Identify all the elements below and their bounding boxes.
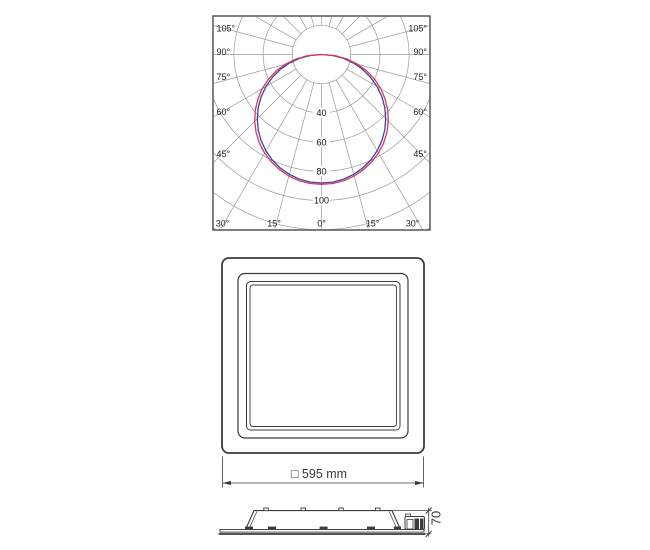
boss-icon — [394, 527, 401, 530]
boss-icon — [245, 527, 253, 530]
radial-tick-label: 80 — [316, 167, 326, 177]
angle-label-bottom: 30° — [216, 219, 230, 229]
angle-label-right: 75° — [413, 72, 427, 82]
boss-icon — [367, 527, 375, 530]
boss-icon — [268, 527, 276, 530]
angle-label-right: 105° — [408, 23, 427, 33]
arrowhead-right-icon — [415, 481, 424, 485]
angle-label-bottom: 0° — [317, 219, 326, 229]
angle-label-left: 105° — [217, 23, 236, 33]
polar-grid-ray — [236, 0, 314, 26]
clip-icon — [264, 508, 269, 511]
terminal-box-window — [407, 520, 413, 530]
clip-icon — [339, 508, 344, 511]
polar-grid-ray — [36, 0, 297, 40]
polar-grid-ray — [350, 62, 641, 140]
height-dimension-label: 70 — [429, 511, 444, 525]
clip-icon — [301, 508, 306, 511]
front-view-panel: □ 595 mm — [222, 258, 424, 488]
panel-face-plate — [220, 530, 424, 533]
angle-label-left: 45° — [217, 149, 231, 159]
terminal-box — [405, 514, 425, 530]
polar-grid-ray — [347, 69, 608, 219]
polar-grid-ray — [3, 0, 294, 47]
arrowhead-left-icon — [223, 481, 232, 485]
side-view-profile: 70 — [219, 508, 444, 537]
angle-label-bottom: 15° — [267, 219, 281, 229]
angle-label-bottom: 30° — [406, 219, 420, 229]
polar-grid-ray — [350, 0, 641, 47]
terminal-block-icon — [420, 519, 424, 530]
panel-light-surface — [250, 285, 397, 427]
polar-grid-ray — [3, 62, 294, 140]
radial-tick-label: 100 — [314, 196, 329, 206]
terminal-block-icon — [415, 519, 420, 530]
angle-label-left: 90° — [217, 47, 231, 57]
angle-label-right: 60° — [413, 107, 427, 117]
polar-grid-ray — [88, 75, 301, 288]
angle-label-bottom: 15° — [366, 219, 380, 229]
angle-label-left: 60° — [217, 107, 231, 117]
polar-grid-ray — [329, 0, 407, 26]
polar-grid-ray — [342, 75, 555, 288]
radial-tick-label: 60 — [316, 137, 326, 147]
clip-icon — [376, 508, 381, 511]
boss-icon — [320, 527, 328, 530]
polar-grid-ray — [36, 69, 297, 219]
angle-label-right: 45° — [413, 149, 427, 159]
angle-label-left: 75° — [217, 72, 231, 82]
luminaire-datasheet-drawing: 105°90°75°60°45°105°90°75°60°45°30°15°0°… — [0, 0, 650, 550]
angle-label-right: 90° — [413, 47, 427, 57]
polar-grid-ray — [347, 0, 608, 40]
radial-tick-label: 40 — [316, 108, 326, 118]
width-dimension-label: □ 595 mm — [291, 467, 347, 481]
